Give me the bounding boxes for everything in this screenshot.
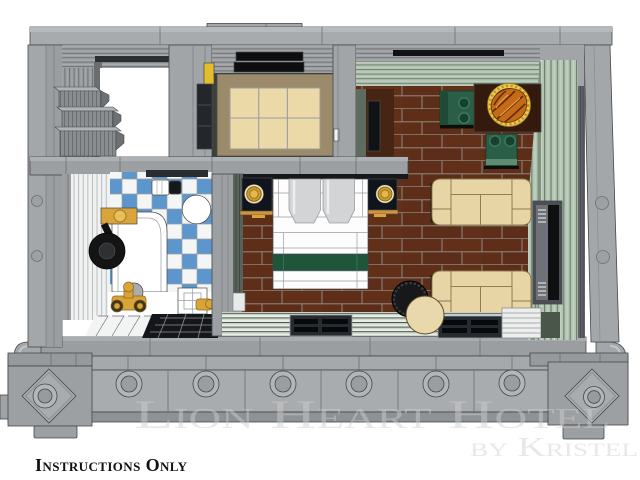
svg-text:Lion Heart Hotel: Lion Heart Hotel [134, 392, 610, 437]
svg-text:by Kristel: by Kristel [470, 432, 638, 462]
svg-text:Instructions Only: Instructions Only [35, 455, 188, 475]
